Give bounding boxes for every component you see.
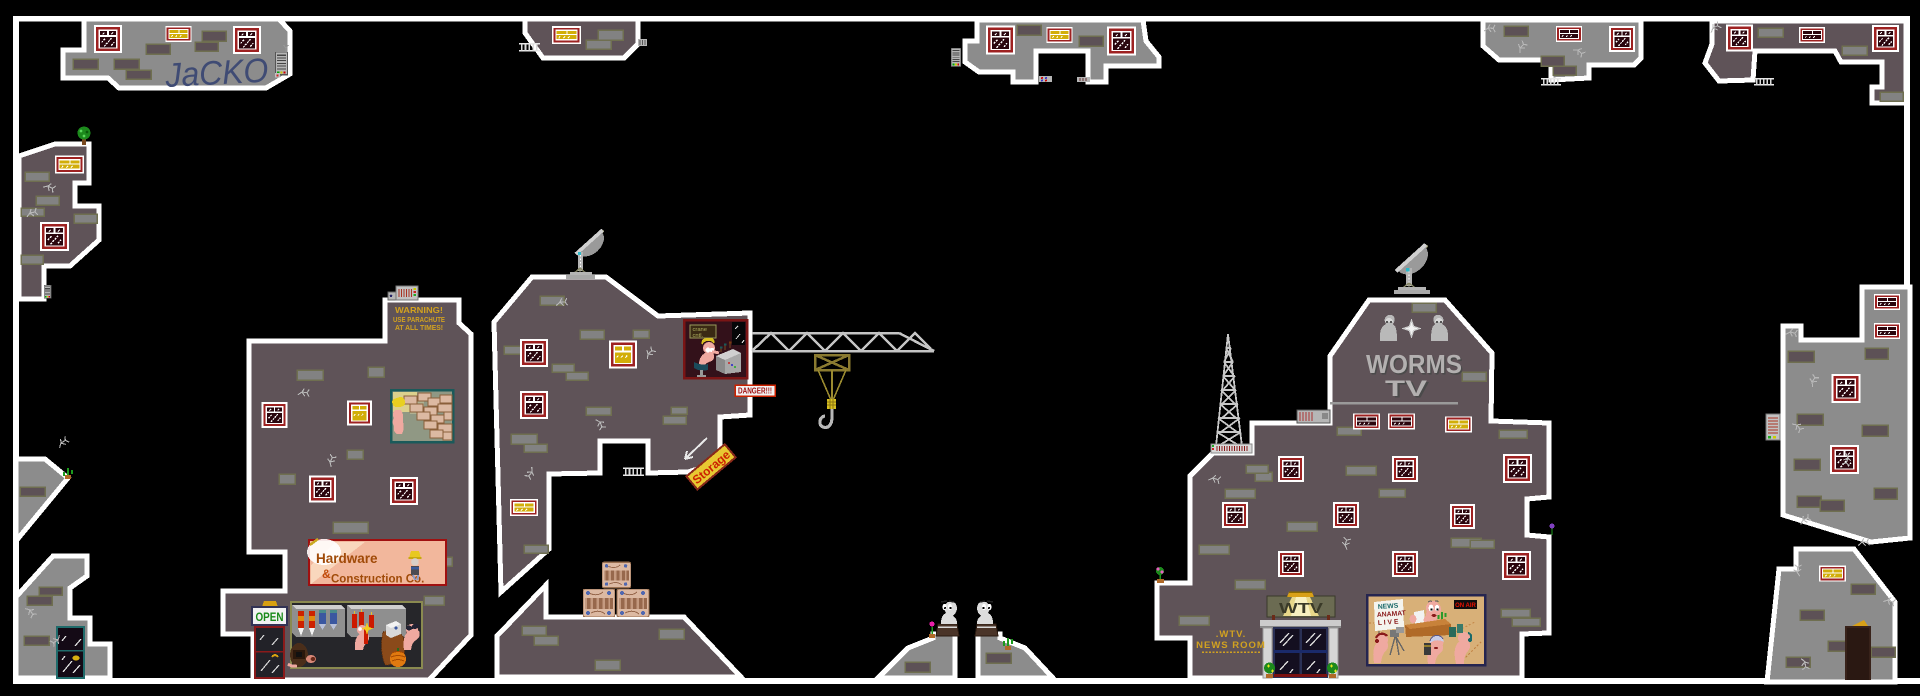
- svg-text:Construction Co.: Construction Co.: [331, 574, 424, 586]
- svg-text:&: &: [322, 567, 331, 581]
- svg-text:.WTV.: .WTV.: [1216, 629, 1247, 640]
- svg-text:JaCKO: JaCKO: [163, 52, 269, 95]
- svg-text:TV: TV: [1385, 376, 1427, 401]
- svg-text:Hardware: Hardware: [316, 551, 378, 566]
- svg-text:ON AIR: ON AIR: [1455, 603, 1476, 609]
- svg-text:WARNING!: WARNING!: [395, 305, 443, 315]
- svg-text:L I V E: L I V E: [1378, 619, 1400, 627]
- svg-text:WORMS: WORMS: [1366, 349, 1462, 379]
- svg-text:OPEN: OPEN: [256, 610, 284, 624]
- svg-text:AT ALL TIMES!: AT ALL TIMES!: [395, 325, 443, 332]
- svg-text:USE PARACHUTE: USE PARACHUTE: [393, 317, 445, 324]
- svg-text:DANGER!!!: DANGER!!!: [738, 387, 772, 396]
- svg-text:WTV: WTV: [1279, 600, 1323, 617]
- svg-text:cntl.: cntl.: [693, 333, 704, 339]
- svg-text:NEWS ROOM: NEWS ROOM: [1196, 640, 1266, 651]
